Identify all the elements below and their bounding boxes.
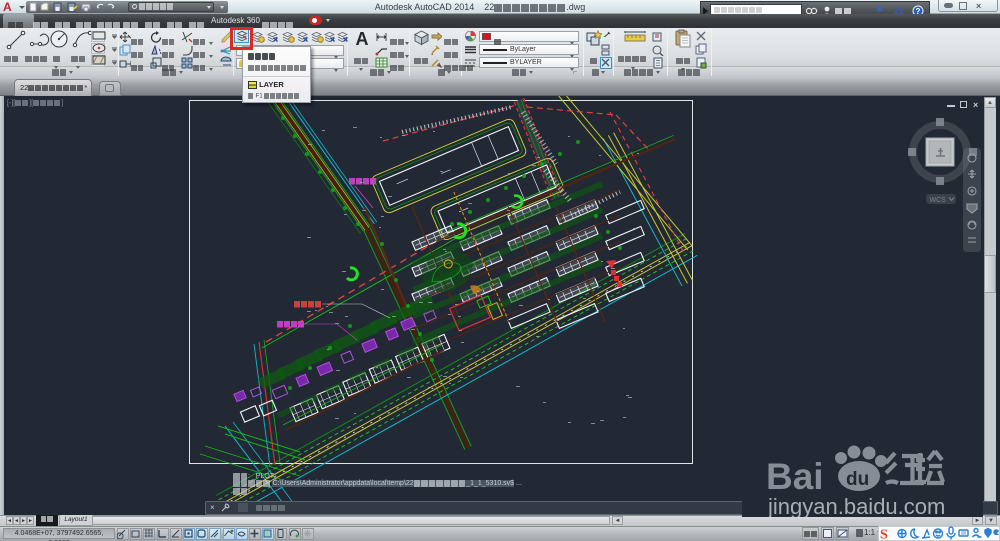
svg-text:Bai: Bai [766,456,824,497]
svg-text:S: S [880,528,888,541]
svg-text:WCS: WCS [930,197,947,204]
svg-text:jingyan.baidu.com: jingyan.baidu.com [767,494,945,517]
svg-text:du: du [846,469,869,490]
